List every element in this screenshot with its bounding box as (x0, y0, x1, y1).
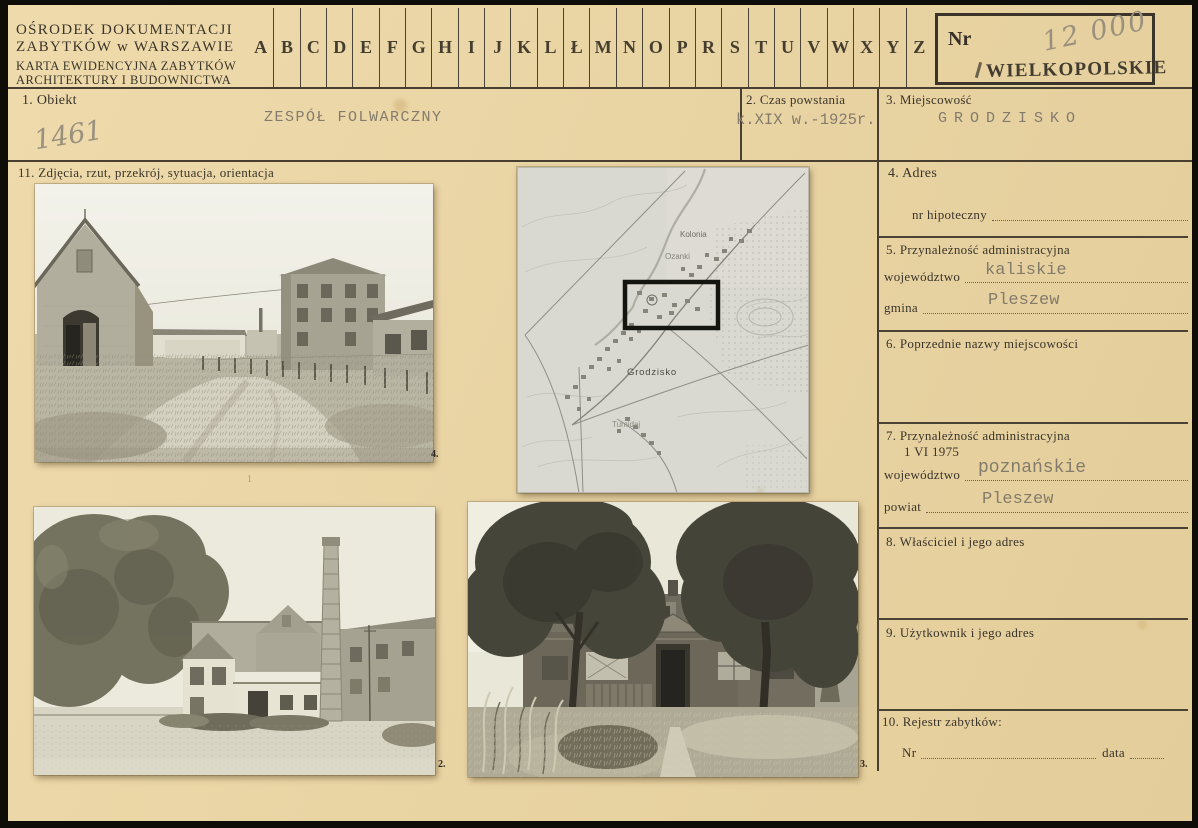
alphabet-letter-S: S (722, 8, 748, 87)
photo-manor (468, 502, 858, 777)
alphabet-letter-I: I (459, 8, 485, 87)
alphabet-letter-K: K (511, 8, 537, 87)
photo-farmyard-page-mark: 1 (247, 474, 252, 485)
hline-row1-bottom (8, 160, 1192, 162)
photo-mill (34, 507, 435, 775)
hline-header-bottom (8, 87, 1192, 89)
field5-gmina-value: Pleszew (988, 291, 1059, 310)
mill-buildings (180, 605, 435, 721)
hline-f6-bottom (878, 422, 1188, 424)
hline-f4-bottom (878, 236, 1188, 238)
right-tree-shadow (723, 544, 813, 620)
hline-f7-bottom (878, 527, 1188, 529)
field10-data-label: data (1102, 745, 1125, 761)
alphabet-letter-V: V (801, 8, 827, 87)
alphabet-letter-R: R (696, 8, 722, 87)
alphabet-letter-N: N (617, 8, 643, 87)
field7-powiat-fill-line (926, 496, 1188, 513)
card-type-title: KARTA EWIDENCYJNA ZABYTKÓW ARCHITEKTURY … (16, 60, 236, 87)
map-label-tumidaj: Tumidaj (612, 420, 640, 429)
card-type-line1: KARTA EWIDENCYJNA ZABYTKÓW (16, 60, 236, 74)
alphabet-letter-G: G (406, 8, 432, 87)
field1-value: ZESPÓŁ FOLWARCZNY (264, 109, 443, 126)
chimney (320, 537, 342, 721)
field6-label: 6. Poprzednie nazwy miejscowości (886, 336, 1078, 352)
alphabet-letter-D: D (327, 8, 353, 87)
alphabet-letter-E: E (353, 8, 379, 87)
map-label-ozanki: Ozanki (665, 252, 690, 261)
card-type-line2: ARCHITEKTURY I BUDOWNICTWA (16, 74, 236, 88)
scanned-heritage-card: OŚRODEK DOKUMENTACJI ZABYTKÓW w WARSZAWI… (0, 0, 1198, 828)
right-tree-trunk (763, 622, 767, 717)
field10-nr-row: Nr data (902, 742, 1164, 761)
field10-label: 10. Rejestr zabytków: (882, 714, 1002, 730)
alphabet-letter-B: B (274, 8, 300, 87)
paper-stain-3 (757, 487, 764, 494)
alphabet-letter-M: M (590, 8, 616, 87)
photo-manor-image (468, 502, 858, 777)
field7-wojewodztwo-value: poznańskie (978, 458, 1086, 478)
field5-label: 5. Przynależność administracyjna (886, 242, 1070, 258)
utility-pole (369, 625, 370, 721)
field3-label: 3. Miejscowość (886, 92, 972, 108)
alphabet-letter-P: P (670, 8, 696, 87)
alphabet-letter-J: J (485, 8, 511, 87)
alphabet-letter-H: H (432, 8, 458, 87)
field4-hipoteczny-row: nr hipoteczny (912, 204, 1188, 223)
site-map: Kolonia Ozanki Grodzisko Tumidaj (517, 167, 809, 493)
photo-mill-image (34, 507, 435, 775)
field4-fill-line (992, 204, 1188, 221)
vline-main-right-column (877, 88, 879, 771)
alphabet-letter-T: T (749, 8, 775, 87)
grass-texture (35, 352, 433, 462)
alphabet-letter-C: C (301, 8, 327, 87)
field1-label: 1. Obiekt (22, 93, 77, 109)
field9-label: 9. Użytkownik i jego adres (886, 625, 1034, 641)
field5-wojewodztwo-label: województwo (884, 269, 960, 285)
field3-value: GRODZISKO (938, 110, 1082, 127)
photo-farmyard-image (35, 184, 433, 462)
alphabet-strip: ABCDEFGHIJKLŁMNOPRSTUVWXYZ (248, 8, 932, 87)
grass-texture (468, 712, 858, 777)
field11-label: 11. Zdjęcia, rzut, przekrój, sytuacja, o… (18, 165, 274, 181)
hline-f5-bottom (878, 330, 1188, 332)
foreground-light (34, 759, 435, 775)
field10-nr-label: Nr (902, 745, 916, 761)
nr-label: Nr (948, 28, 971, 51)
field5-wojewodztwo-value: kaliskie (985, 261, 1067, 280)
field4-sub-label: nr hipoteczny (912, 207, 987, 223)
alphabet-letter-X: X (854, 8, 880, 87)
photo-manor-caption: 3. (860, 759, 868, 770)
field10-nr-fill-line (921, 742, 1096, 759)
alphabet-letter-A: A (248, 8, 274, 87)
field4-label: 4. Adres (888, 166, 937, 182)
org-title: OŚRODEK DOKUMENTACJI ZABYTKÓW w WARSZAWI… (16, 22, 234, 56)
field2-value: k.XIX w.-1925r. (736, 111, 876, 129)
org-title-line2: ZABYTKÓW w WARSZAWIE (16, 39, 234, 56)
alphabet-letter-Z: Z (907, 8, 932, 87)
hline-f9-bottom (878, 709, 1188, 711)
alphabet-letter-F: F (380, 8, 406, 87)
alphabet-letter-Ł: Ł (564, 8, 590, 87)
paper-stain-1 (394, 99, 407, 112)
site-map-image: Kolonia Ozanki Grodzisko Tumidaj (517, 167, 809, 493)
field7-label: 7. Przynależność administracyjna (886, 428, 1070, 444)
voivodeship-stamp: WIELKOPOLSKIE (986, 57, 1168, 83)
alphabet-letter-Y: Y (880, 8, 906, 87)
map-label-grodzisko: Grodzisko (627, 367, 677, 378)
field8-label: 8. Właściciel i jego adres (886, 534, 1025, 550)
alphabet-letter-O: O (643, 8, 669, 87)
field10-data-fill-line (1130, 742, 1164, 759)
foreground-shadow (35, 448, 433, 462)
photo-farmyard (35, 184, 433, 462)
photo-mill-caption: 2. (438, 759, 446, 770)
map-dotted-area-2 (742, 445, 807, 489)
org-title-line1: OŚRODEK DOKUMENTACJI (16, 22, 234, 39)
field7-powiat-label: powiat (884, 499, 921, 515)
map-label-kolonia: Kolonia (680, 230, 707, 239)
paper-stain-2 (1138, 620, 1147, 629)
field7-date-label: 1 VI 1975 (904, 444, 959, 460)
field2-label: 2. Czas powstania (746, 92, 845, 108)
alphabet-letter-U: U (775, 8, 801, 87)
field5-gmina-label: gmina (884, 300, 918, 316)
photo-farmyard-caption: 4. (431, 449, 439, 460)
field7-wojewodztwo-label: województwo (884, 467, 960, 483)
alphabet-letter-L: L (538, 8, 564, 87)
field7-powiat-value: Pleszew (982, 490, 1053, 509)
alphabet-letter-W: W (828, 8, 854, 87)
